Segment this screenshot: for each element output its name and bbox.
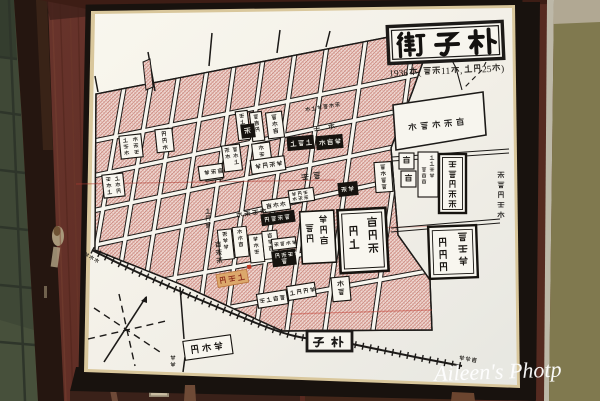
svg-text:): ): [501, 63, 505, 74]
svg-text:1936: 1936: [389, 69, 409, 80]
svg-text:25: 25: [482, 65, 492, 75]
svg-text:11: 11: [441, 67, 451, 77]
svg-text:,: ,: [460, 66, 463, 76]
svg-text:(: (: [418, 67, 422, 78]
svg-text:Aileen's Photp: Aileen's Photp: [432, 357, 562, 387]
